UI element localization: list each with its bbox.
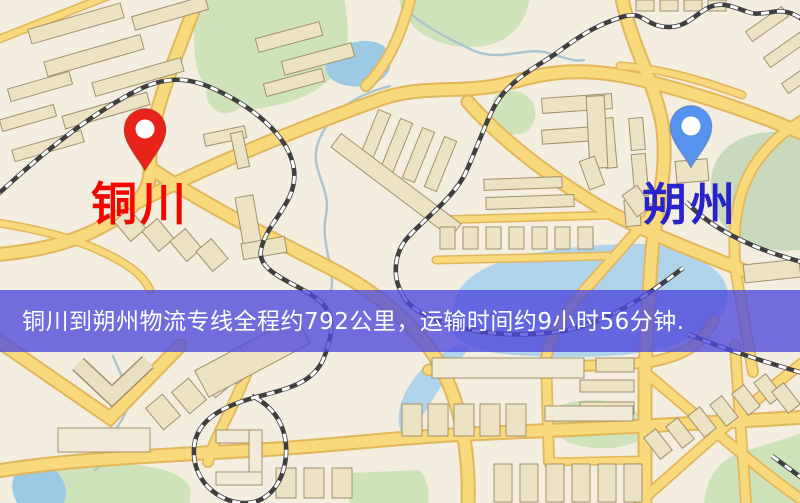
route-info-banner: 铜川到朔州物流专线全程约792公里，运输时间约9小时56分钟.	[0, 290, 800, 352]
route-info-text: 铜川到朔州物流专线全程约792公里，运输时间约9小时56分钟.	[22, 309, 685, 335]
destination-city-label: 朔州	[642, 178, 738, 231]
map-screenshot: 铜川到朔州物流专线全程约792公里，运输时间约9小时56分钟. 铜川 朔州	[0, 0, 800, 503]
origin-pin-dot	[136, 120, 155, 139]
origin-city-label: 铜川	[91, 177, 189, 231]
map-canvas[interactable]: 铜川到朔州物流专线全程约792公里，运输时间约9小时56分钟. 铜川 朔州	[0, 0, 800, 503]
destination-pin-dot	[682, 117, 701, 136]
